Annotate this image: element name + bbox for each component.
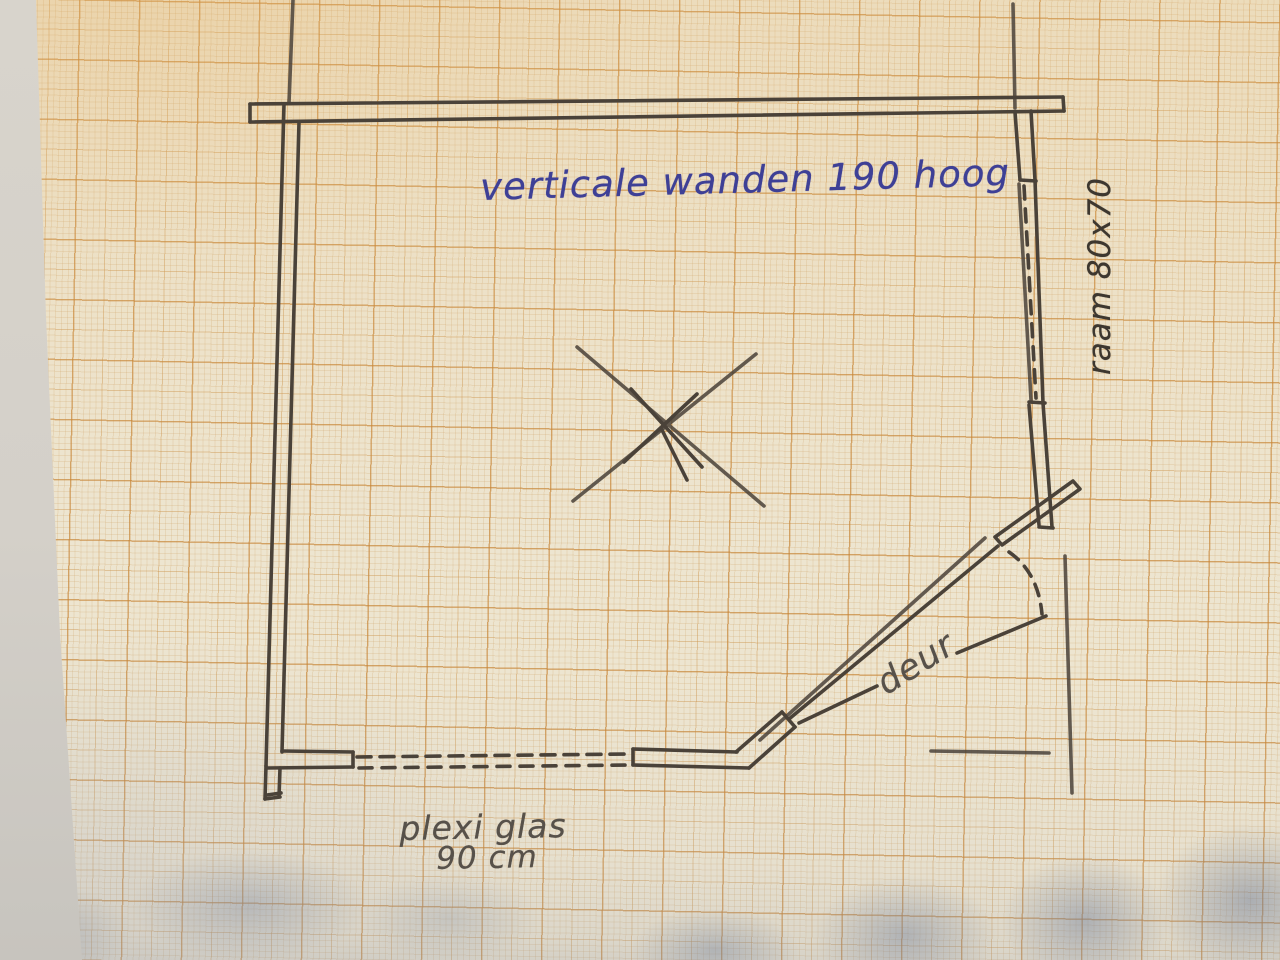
right-wall [1015,111,1053,528]
plexiglass-label-line2: 90 cm [436,839,538,877]
photo-of-floor-plan-sketch: verticale wanden 190 hoog raam 80x70 deu… [0,0,1280,960]
ink-mark [267,793,281,795]
window-size-note: raam 80x70 [1082,177,1118,375]
center-mark [624,389,702,480]
left-wall [265,104,299,799]
floor-plan-drawing [0,0,1280,960]
plexiglass-dashed-opening [357,754,632,768]
top-wall [250,97,1064,122]
